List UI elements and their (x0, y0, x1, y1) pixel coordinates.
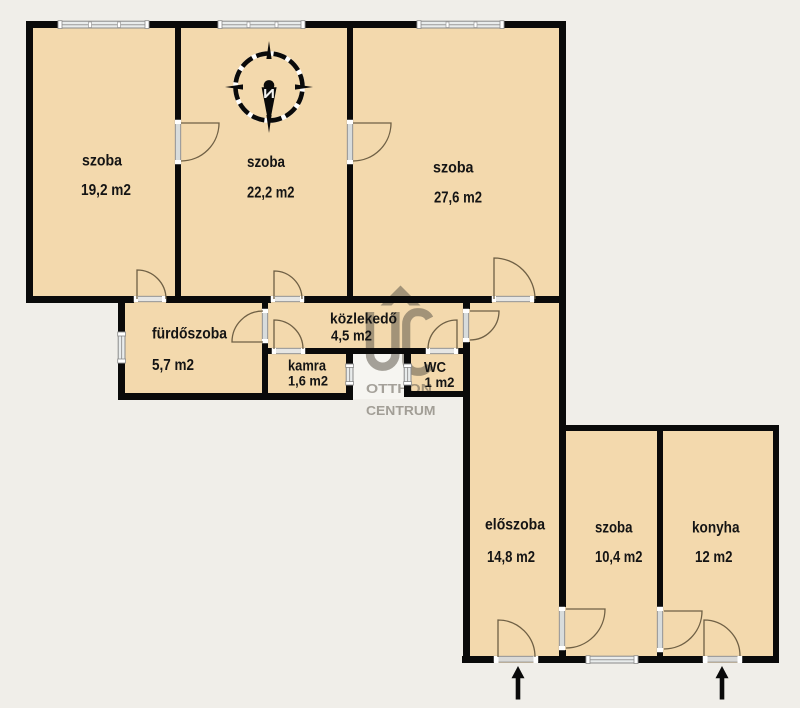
svg-text:kamra: kamra (288, 359, 327, 375)
svg-text:szoba: szoba (433, 160, 474, 177)
svg-text:10,4 m2: 10,4 m2 (595, 549, 643, 566)
svg-text:27,6 m2: 27,6 m2 (434, 190, 482, 207)
svg-text:szoba: szoba (247, 154, 285, 171)
svg-text:1 m2: 1 m2 (425, 375, 455, 390)
svg-text:5,7 m2: 5,7 m2 (152, 357, 194, 374)
svg-text:1,6 m2: 1,6 m2 (288, 374, 328, 389)
svg-text:szoba: szoba (595, 520, 633, 537)
svg-text:előszoba: előszoba (485, 517, 545, 534)
svg-text:fürdőszoba: fürdőszoba (152, 326, 227, 343)
svg-text:19,2 m2: 19,2 m2 (81, 182, 131, 199)
svg-text:22,2 m2: 22,2 m2 (247, 185, 295, 202)
svg-text:konyha: konyha (692, 520, 740, 537)
svg-text:12 m2: 12 m2 (695, 549, 733, 566)
svg-text:szoba: szoba (82, 153, 122, 170)
svg-text:CENTRUM: CENTRUM (366, 403, 436, 418)
svg-text:4,5 m2: 4,5 m2 (331, 329, 372, 345)
svg-text:WC: WC (424, 360, 446, 376)
svg-text:14,8 m2: 14,8 m2 (487, 549, 535, 566)
svg-text:közlekedő: közlekedő (330, 311, 397, 328)
